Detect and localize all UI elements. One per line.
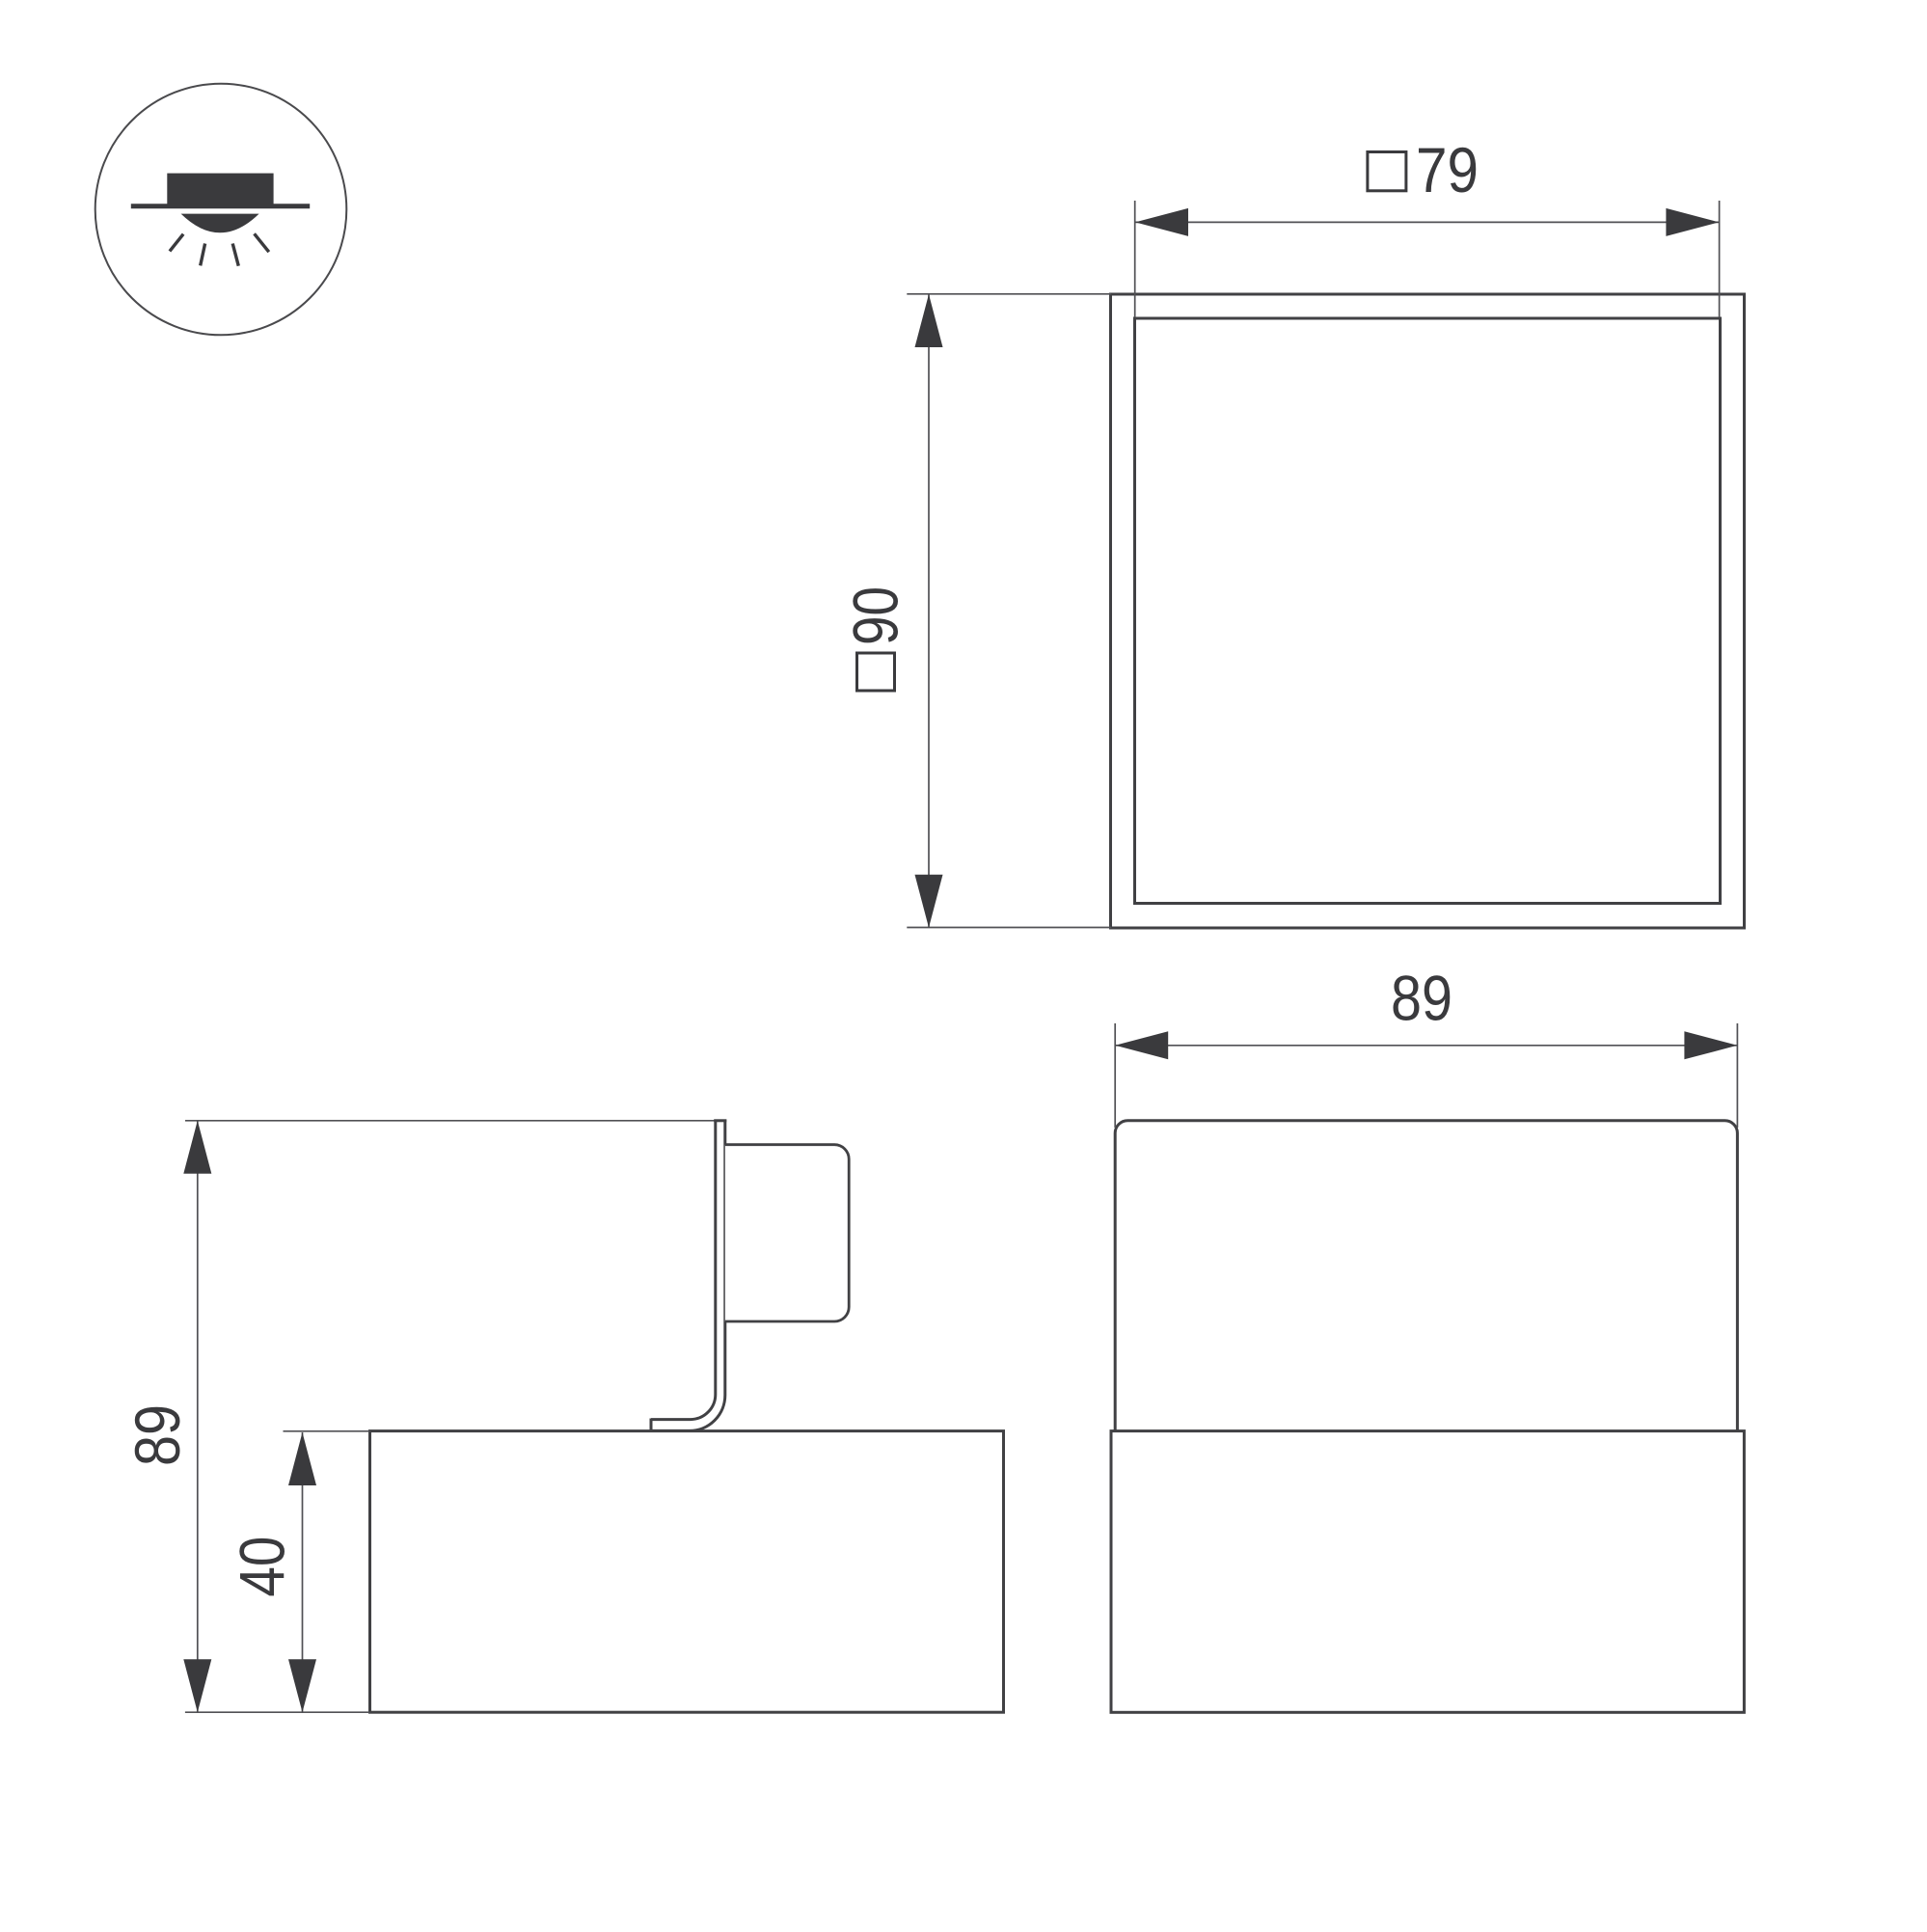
svg-text:90: 90 bbox=[840, 586, 911, 645]
svg-text:40: 40 bbox=[227, 1537, 298, 1597]
svg-text:89: 89 bbox=[1391, 963, 1452, 1034]
svg-text:89: 89 bbox=[122, 1404, 193, 1466]
svg-text:79: 79 bbox=[1416, 134, 1479, 205]
